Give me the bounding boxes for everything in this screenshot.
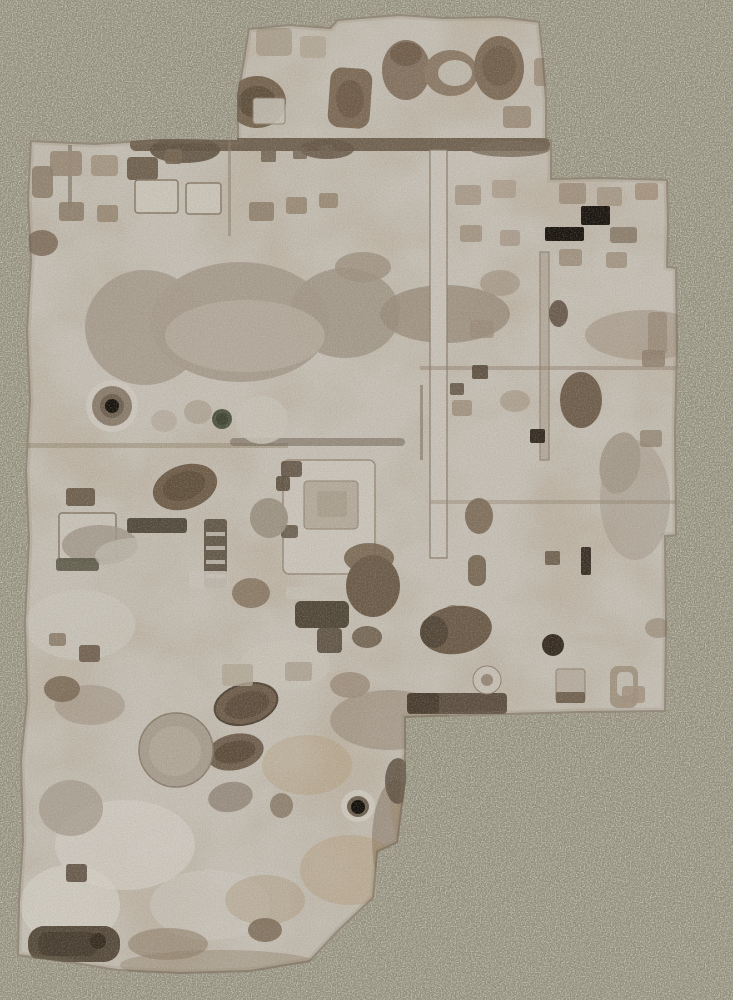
orthophoto-figure: [0, 0, 733, 1000]
excavation-site-orthophoto: [0, 0, 733, 1000]
